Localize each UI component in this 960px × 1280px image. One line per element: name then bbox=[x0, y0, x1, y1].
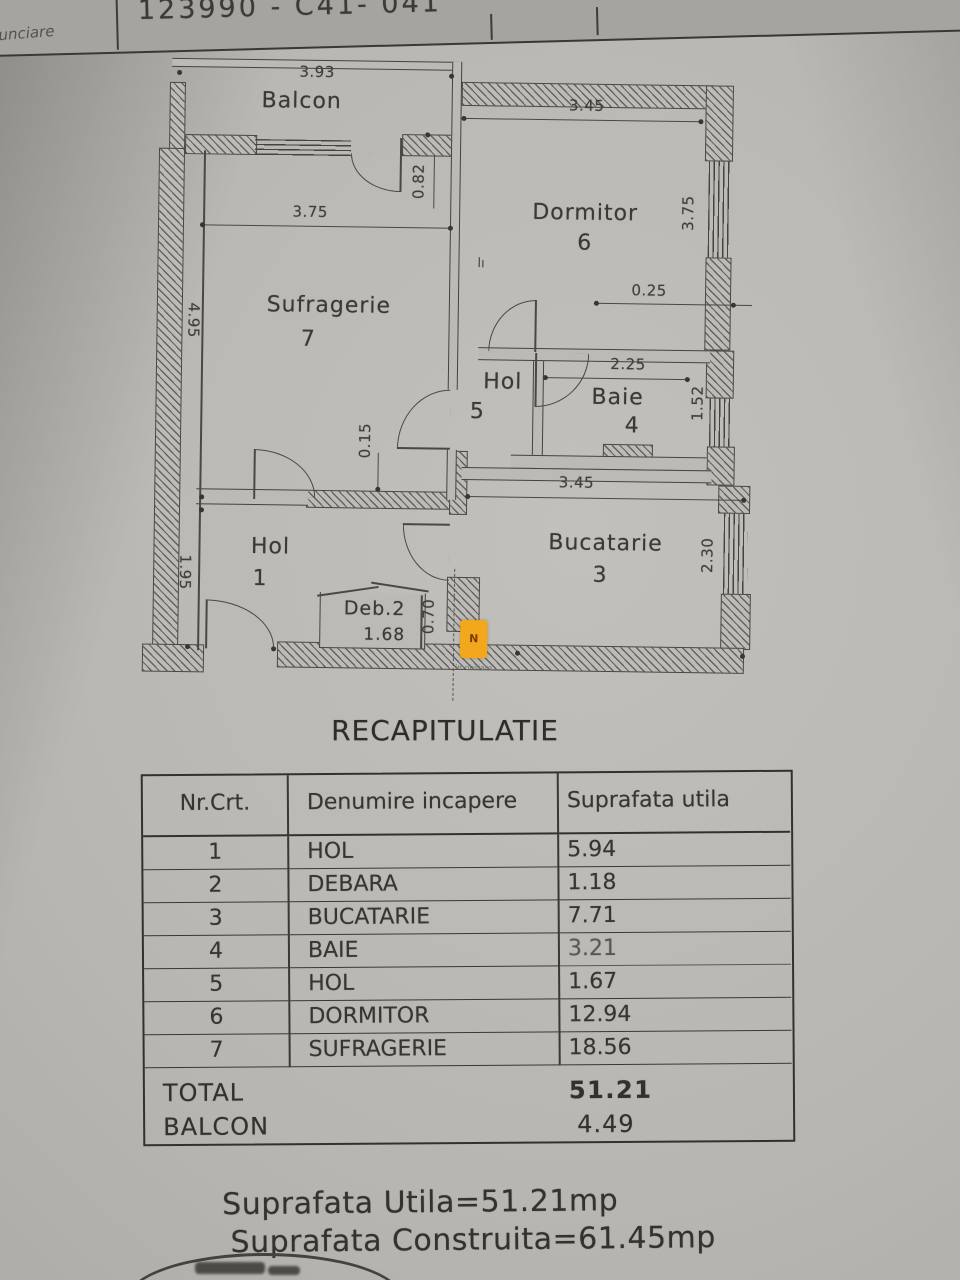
dimension-line bbox=[467, 496, 744, 501]
balcon-label: BALCON bbox=[163, 1112, 269, 1141]
table-cell-name: DORMITOR bbox=[290, 999, 560, 1034]
dim-wall-jog: 0.15 bbox=[357, 412, 374, 468]
total-label: TOTAL bbox=[163, 1079, 244, 1108]
junction-dot bbox=[740, 654, 745, 659]
wall-line bbox=[451, 62, 462, 135]
recap-title: RECAPITULATIE bbox=[300, 714, 590, 747]
agency-logo-caption: imobiliare bbox=[438, 663, 510, 673]
door-leaf bbox=[399, 138, 401, 192]
summary-utila: Suprafata Utila=51.21mp bbox=[222, 1183, 618, 1222]
junction-dot bbox=[465, 494, 470, 499]
dim-sufragerie-height: 4.95 bbox=[185, 292, 202, 348]
dimension-line bbox=[204, 224, 452, 229]
table-cell-area: 3.21 bbox=[560, 932, 791, 967]
col-header-name: Denumire incapere bbox=[289, 773, 559, 836]
table-cell-name: DEBARA bbox=[289, 867, 559, 902]
scanned-floorplan-page: unciare 123990 - C41- 041 bbox=[0, 0, 960, 1280]
dim-sufragerie-width: 3.75 bbox=[245, 203, 375, 221]
table-cell-nr: 6 bbox=[144, 1001, 290, 1035]
table-cell-nr: 7 bbox=[145, 1034, 291, 1068]
table-cell-nr: 1 bbox=[143, 836, 289, 870]
room-label-hol5: Hol bbox=[448, 370, 558, 396]
junction-dot bbox=[461, 116, 466, 121]
header-cell-divider bbox=[115, 0, 118, 50]
door-arc bbox=[205, 599, 275, 648]
wall-segment bbox=[142, 643, 204, 672]
room-number-hol5: 5 bbox=[422, 399, 532, 425]
door-arc bbox=[253, 449, 316, 498]
dim-dormitor-offset: 0.25 bbox=[614, 282, 684, 299]
room-label-sufragerie: Sufragerie bbox=[244, 293, 414, 319]
junction-dot bbox=[199, 494, 204, 499]
table-cell-nr: 4 bbox=[144, 935, 290, 969]
room-label-dormitor: Dormitor bbox=[505, 201, 665, 227]
room-number-hol1: 1 bbox=[205, 566, 315, 592]
table-cell-area: 7.71 bbox=[560, 899, 791, 934]
table-cell-nr: 2 bbox=[143, 869, 289, 903]
dim-baie-height: 1.52 bbox=[689, 375, 706, 431]
wall-segment bbox=[402, 134, 454, 157]
col-header-area: Suprafata utila bbox=[559, 772, 790, 835]
section-mark: lı bbox=[477, 256, 484, 271]
room-number-dormitor: 6 bbox=[505, 231, 665, 257]
table-cell-area: 12.94 bbox=[560, 998, 791, 1033]
table-cell-name: HOL bbox=[290, 966, 560, 1001]
junction-dot bbox=[425, 132, 430, 137]
room-label-debara: Deb.2 bbox=[329, 596, 419, 621]
recap-table: Nr.Crt. Denumire incapere Suprafata util… bbox=[141, 770, 796, 1147]
dim-dormitor-width: 3.45 bbox=[522, 97, 652, 115]
floor-plan: 3.93 3.75 3.45 0.25 2.25 3.45 4.95 1.95 … bbox=[143, 50, 768, 709]
dim-balcon-door: 0.82 bbox=[410, 153, 427, 209]
junction-dot bbox=[199, 507, 204, 512]
window bbox=[255, 139, 351, 156]
scan-header-strip: unciare 123990 - C41- 041 bbox=[0, 0, 960, 57]
table-cell-nr: 5 bbox=[144, 968, 290, 1002]
header-cell-divider bbox=[596, 7, 598, 35]
stamp-ink-smudge bbox=[268, 1266, 300, 1275]
wall-line bbox=[446, 450, 457, 500]
agency-logo: N bbox=[460, 620, 488, 658]
wall-segment bbox=[720, 594, 751, 650]
table-cell-area: 1.67 bbox=[560, 965, 791, 1000]
wall-line bbox=[448, 135, 462, 390]
table-cell-area: 18.56 bbox=[561, 1031, 792, 1066]
dim-dormitor-height: 3.75 bbox=[680, 185, 697, 241]
wall-segment bbox=[306, 490, 459, 510]
door-arc bbox=[350, 153, 401, 192]
wall-segment bbox=[185, 134, 257, 155]
dim-bucatarie-width: 3.45 bbox=[536, 474, 616, 491]
table-cell-name: BAIE bbox=[290, 933, 560, 968]
dim-bucatarie-height: 2.30 bbox=[699, 527, 716, 583]
junction-dot bbox=[271, 646, 276, 651]
col-header-nr: Nr.Crt. bbox=[143, 775, 289, 837]
stamp-ink-smudge bbox=[195, 1262, 265, 1274]
junction-dot bbox=[177, 70, 182, 75]
room-label-baie: Baie bbox=[567, 385, 667, 410]
dimension-line bbox=[463, 118, 701, 123]
wall-segment bbox=[705, 85, 734, 161]
window bbox=[708, 161, 731, 257]
window bbox=[723, 514, 748, 594]
door-arc bbox=[488, 299, 537, 352]
junction-dot bbox=[698, 119, 703, 124]
table-cell-name: SUFRAGERIE bbox=[291, 1032, 561, 1067]
balcon-value: 4.49 bbox=[577, 1110, 635, 1138]
room-number-baie: 4 bbox=[582, 414, 682, 439]
junction-dot bbox=[594, 301, 599, 306]
door-arc bbox=[402, 523, 450, 581]
junction-dot bbox=[448, 226, 453, 231]
dim-hol1-height: 1.95 bbox=[177, 544, 194, 600]
table-cell-name: HOL bbox=[289, 834, 559, 869]
room-label-bucatarie: Bucatarie bbox=[515, 531, 695, 558]
document-number: 123990 - C41- 041 bbox=[137, 0, 442, 26]
room-number-bucatarie: 3 bbox=[510, 563, 690, 590]
header-word-fragment: unciare bbox=[0, 22, 55, 44]
junction-dot bbox=[449, 74, 454, 79]
table-cell-nr: 3 bbox=[144, 902, 290, 936]
junction-dot bbox=[515, 651, 520, 656]
dimension-line bbox=[377, 453, 379, 491]
room-label-hol1: Hol bbox=[215, 535, 325, 561]
room-label-balcon: Balcon bbox=[227, 89, 377, 115]
junction-dot bbox=[741, 498, 746, 503]
junction-dot bbox=[731, 303, 736, 308]
table-cell-area: 5.94 bbox=[559, 833, 790, 868]
window bbox=[709, 398, 732, 446]
room-number-sufragerie: 7 bbox=[233, 327, 383, 353]
junction-dot bbox=[375, 487, 380, 492]
wall-segment bbox=[169, 82, 186, 152]
junction-dot bbox=[185, 644, 190, 649]
dim-balcon-width: 3.93 bbox=[252, 63, 382, 81]
junction-dot bbox=[200, 222, 205, 227]
total-value: 51.21 bbox=[569, 1076, 653, 1105]
table-cell-area: 1.18 bbox=[559, 866, 790, 901]
dim-baie-width: 2.25 bbox=[588, 356, 668, 373]
dim-debara-width: 1.68 bbox=[339, 622, 429, 647]
header-cell-divider bbox=[490, 14, 492, 40]
dimension-line bbox=[433, 157, 435, 209]
table-cell-name: BUCATARIE bbox=[290, 900, 560, 935]
